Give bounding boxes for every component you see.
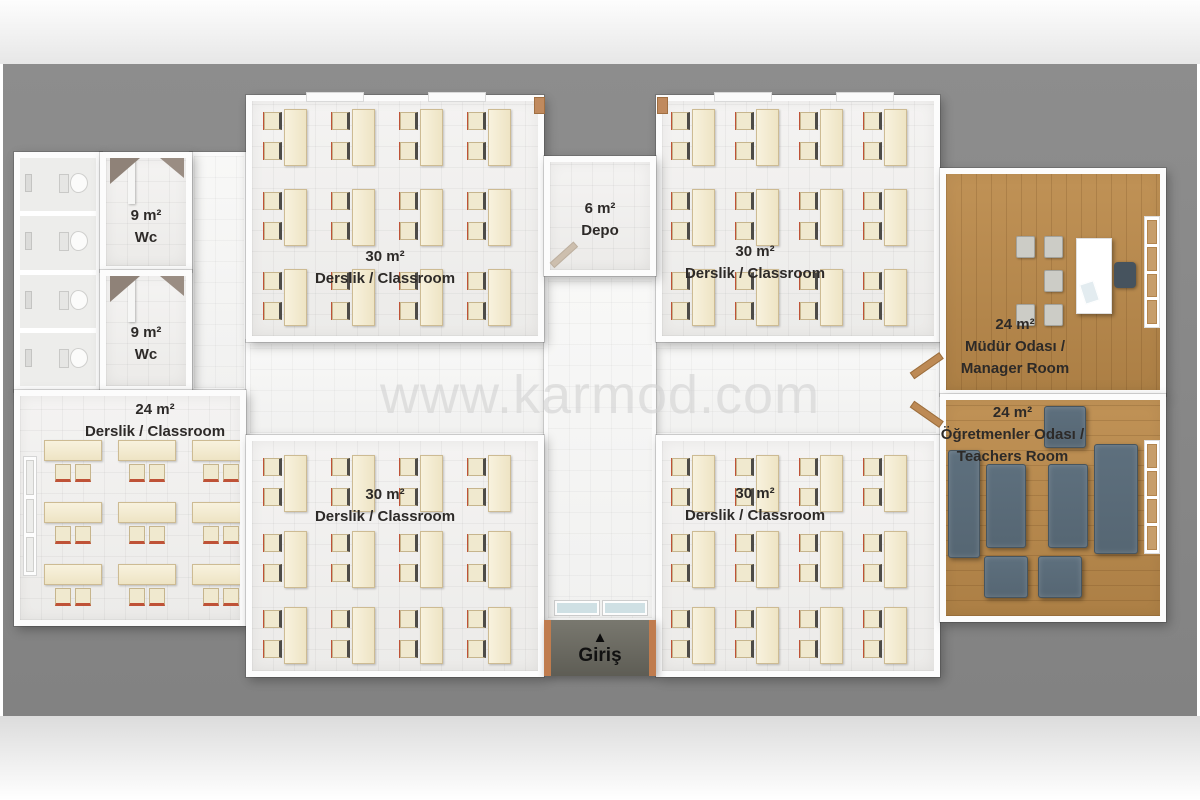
student-chair [864,610,882,628]
toilet-tank [59,174,69,193]
student-chair [400,302,418,320]
entrance-glass-door-left [555,601,599,615]
room-name-en: Manager Room [920,358,1110,380]
student-chair [223,464,239,482]
student-chair [75,464,91,482]
desk-unit [192,502,240,544]
student-desk [820,189,843,246]
student-chair [736,112,754,130]
room-area: 30 m² [270,484,500,506]
guest-chair [1044,236,1063,258]
student-desk [284,189,307,246]
student-chair [149,588,165,606]
room-label-wc-bottom: 9 m² Wc [102,322,190,366]
student-chair [55,526,71,544]
student-chair [468,112,486,130]
student-chair [468,534,486,552]
student-chair [864,302,882,320]
student-desk [756,607,779,664]
student-chair [468,142,486,160]
desk-unit [332,531,376,589]
room-classroom-top-left-30 [246,95,544,342]
student-desk [352,607,375,664]
student-chair [800,640,818,658]
student-chair [672,302,690,320]
desk-unit [118,502,176,544]
desk-unit [800,531,844,589]
student-chair [468,222,486,240]
student-desk [820,607,843,664]
sink [25,232,32,250]
lounge-table [986,464,1026,548]
desk-unit [468,189,512,247]
desk-unit [332,607,376,665]
desk-unit [672,189,716,247]
student-desk [284,109,307,166]
desk-unit [864,455,908,513]
classroom-top-right-floor [662,101,934,336]
student-chair [800,302,818,320]
student-chair [736,192,754,210]
student-desk [420,109,443,166]
room-area: 6 m² [544,198,656,220]
student-chair [400,610,418,628]
student-chair [400,222,418,240]
desk-unit [736,531,780,589]
student-chair [864,458,882,476]
student-chair [332,458,350,476]
student-chair [264,610,282,628]
student-chair [800,564,818,582]
student-chair [800,142,818,160]
desk-unit [192,440,240,482]
wc-open-door [110,276,140,302]
student-desk [884,269,907,326]
student-chair [672,610,690,628]
student-desk [44,440,102,461]
room-area: 9 m² [102,322,190,344]
window [836,92,894,102]
student-chair [800,112,818,130]
room-name: Derslik / Classroom [270,268,500,290]
entrance-area: ▲ Giriş [544,620,656,676]
student-desk [44,564,102,585]
desk-unit [44,564,102,606]
student-desk [884,531,907,588]
room-name: Derslik / Classroom [640,505,870,527]
student-chair [672,192,690,210]
student-desk [118,502,176,523]
guest-chair [1044,270,1063,292]
watermark-text: www.karmod.com [320,364,880,426]
student-chair [736,534,754,552]
window [428,92,486,102]
student-desk [692,607,715,664]
sink [25,174,32,192]
desk-unit [118,564,176,606]
student-chair [264,112,282,130]
student-chair [55,588,71,606]
toilet-stall [20,158,96,216]
student-chair [332,640,350,658]
student-chair [672,564,690,582]
student-chair [864,142,882,160]
desk-unit [800,607,844,665]
desk-unit [332,189,376,247]
armchair [984,556,1028,598]
student-chair [672,640,690,658]
student-chair [800,458,818,476]
wc-open-door [160,276,184,296]
student-desk [756,109,779,166]
toilet-stall [20,333,96,386]
student-chair [203,464,219,482]
toilet-stall-block [14,152,102,392]
desk-unit [44,440,102,482]
desk-unit [468,531,512,589]
student-chair [400,112,418,130]
student-chair [736,610,754,628]
student-chair [129,588,145,606]
classroom-shelf [23,456,37,576]
student-chair [800,610,818,628]
window [714,92,772,102]
student-chair [264,222,282,240]
background-bottom-band [0,716,1200,800]
student-desk [192,440,240,461]
student-chair [264,458,282,476]
room-label-classroom-bottom-left: 30 m² Derslik / Classroom [270,484,500,528]
student-chair [129,526,145,544]
student-chair [468,458,486,476]
student-chair [736,640,754,658]
student-chair [864,192,882,210]
toilet-tank [59,232,69,251]
room-name: Derslik / Classroom [270,506,500,528]
student-chair [75,526,91,544]
student-desk [420,189,443,246]
student-desk [488,109,511,166]
student-chair [332,302,350,320]
student-desk [420,607,443,664]
student-chair [672,534,690,552]
armchair [1038,556,1082,598]
student-chair [468,302,486,320]
student-chair [736,564,754,582]
student-chair [468,564,486,582]
room-label-depo: 6 m² Depo [544,198,656,242]
student-chair [264,302,282,320]
student-chair [400,564,418,582]
room-name: Derslik / Classroom [45,421,265,443]
room-name: Depo [544,220,656,242]
desk-unit [800,109,844,167]
student-chair [672,142,690,160]
student-desk [192,502,240,523]
desk-unit [400,531,444,589]
wc-open-door [110,158,140,184]
student-chair [468,640,486,658]
student-chair [264,192,282,210]
toilet-bowl [70,231,88,251]
room-label-classroom-top-right: 30 m² Derslik / Classroom [640,241,870,285]
room-area: 9 m² [102,205,190,227]
student-chair [468,610,486,628]
desk-unit [400,109,444,167]
student-chair [149,464,165,482]
desk-unit [800,189,844,247]
wall-wood-mark [534,97,545,114]
desk-unit [672,531,716,589]
student-desk [118,440,176,461]
student-desk [118,564,176,585]
student-desk [820,531,843,588]
room-label-teachers: 24 m² Öğretmenler Odası / Teachers Room [915,402,1110,468]
desk-unit [468,607,512,665]
student-desk [488,531,511,588]
entrance-label: Giriş [578,645,621,667]
student-chair [223,526,239,544]
student-chair [672,222,690,240]
student-desk [884,189,907,246]
student-chair [332,112,350,130]
student-chair [864,112,882,130]
desk-unit [864,607,908,665]
student-chair [864,640,882,658]
student-desk [692,189,715,246]
desk-unit [864,531,908,589]
student-chair [149,526,165,544]
student-chair [264,564,282,582]
student-chair [332,142,350,160]
desk-unit [864,109,908,167]
student-desk [884,109,907,166]
student-chair [400,458,418,476]
office-chair [1114,262,1136,288]
student-chair [800,222,818,240]
desk-unit [672,109,716,167]
room-name-tr: Öğretmenler Odası / [915,424,1110,446]
student-chair [203,588,219,606]
bookshelf [1144,440,1160,554]
student-desk [488,189,511,246]
student-chair [332,534,350,552]
room-classroom-bottom-left-30 [246,435,544,677]
wc-open-door [160,158,184,178]
desk-unit [468,109,512,167]
classroom-top-left-floor [252,101,538,336]
desk-unit [264,607,308,665]
student-desk [692,531,715,588]
background-top-band [0,0,1200,64]
student-chair [400,192,418,210]
desk-unit [400,607,444,665]
student-desk [884,455,907,512]
sink [25,349,32,367]
toilet-bowl [70,348,88,368]
room-area: 30 m² [640,483,870,505]
student-desk [44,502,102,523]
desk-unit [192,564,240,606]
toilet-bowl [70,290,88,310]
student-chair [736,222,754,240]
student-chair [223,588,239,606]
lounge-table [1048,464,1088,548]
room-name: Wc [102,227,190,249]
student-chair [736,302,754,320]
bookshelf [1144,216,1160,328]
toilet-stall [20,275,96,333]
room-area: 24 m² [920,314,1110,336]
desk-unit [864,189,908,247]
room-area: 24 m² [45,399,265,421]
student-chair [864,534,882,552]
student-chair [468,192,486,210]
student-desk [352,531,375,588]
room-label-manager: 24 m² Müdür Odası / Manager Room [920,314,1110,380]
desk-unit [264,531,308,589]
student-chair [332,192,350,210]
student-chair [332,610,350,628]
student-desk [192,564,240,585]
manager-desk [1076,238,1112,314]
sink [25,291,32,309]
desk-unit [264,109,308,167]
student-desk [692,109,715,166]
student-chair [75,588,91,606]
desk-unit [44,502,102,544]
toilet-tank [59,349,69,368]
room-name: Derslik / Classroom [640,263,870,285]
entrance-hall [544,274,656,622]
room-name: Wc [102,344,190,366]
student-chair [129,464,145,482]
guest-chair [1016,236,1035,258]
desk-unit [864,269,908,327]
desk-unit [264,189,308,247]
window [306,92,364,102]
classroom-bottom-right-floor [662,441,934,671]
student-chair [736,142,754,160]
room-name-en: Teachers Room [915,446,1110,468]
student-chair [864,222,882,240]
student-chair [55,464,71,482]
student-chair [672,458,690,476]
student-desk [352,189,375,246]
student-desk [352,109,375,166]
entrance-arrow-icon: ▲ [593,630,608,645]
room-label-wc-top: 9 m² Wc [102,205,190,249]
student-chair [203,526,219,544]
desk-unit [118,440,176,482]
student-desk [420,531,443,588]
student-chair [800,534,818,552]
student-desk [284,531,307,588]
room-label-classroom-top-left: 30 m² Derslik / Classroom [270,246,500,290]
desk-unit [736,189,780,247]
student-desk [820,109,843,166]
student-chair [332,222,350,240]
room-area: 30 m² [640,241,870,263]
room-label-classroom-left: 24 m² Derslik / Classroom [45,399,265,443]
classroom-bottom-left-floor [252,441,538,671]
student-desk [756,531,779,588]
desk-unit [736,607,780,665]
student-chair [264,640,282,658]
toilet-stall [20,216,96,274]
student-desk [884,607,907,664]
student-chair [264,142,282,160]
student-chair [400,142,418,160]
student-chair [400,534,418,552]
floor-plan-image: ▲ Giriş www.karmod.com 9 m² Wc 9 m² Wc 6… [0,0,1200,800]
room-area: 24 m² [915,402,1110,424]
room-classroom-bottom-right-30 [656,435,940,677]
student-chair [332,564,350,582]
corridor-left [190,152,248,392]
student-chair [800,192,818,210]
student-chair [400,640,418,658]
entrance-glass-door-right [603,601,647,615]
student-chair [864,564,882,582]
student-chair [264,534,282,552]
wall-wood-mark [657,97,668,114]
room-label-classroom-bottom-right: 30 m² Derslik / Classroom [640,483,870,527]
desk-unit [332,109,376,167]
toilet-tank [59,291,69,310]
room-classroom-top-right-30 [656,95,940,342]
student-chair [672,112,690,130]
desk-unit [672,607,716,665]
student-desk [284,607,307,664]
student-desk [488,607,511,664]
desk-unit [400,189,444,247]
toilet-bowl [70,173,88,193]
room-area: 30 m² [270,246,500,268]
student-desk [756,189,779,246]
desk-unit [736,109,780,167]
room-name-tr: Müdür Odası / [920,336,1110,358]
student-chair [736,458,754,476]
